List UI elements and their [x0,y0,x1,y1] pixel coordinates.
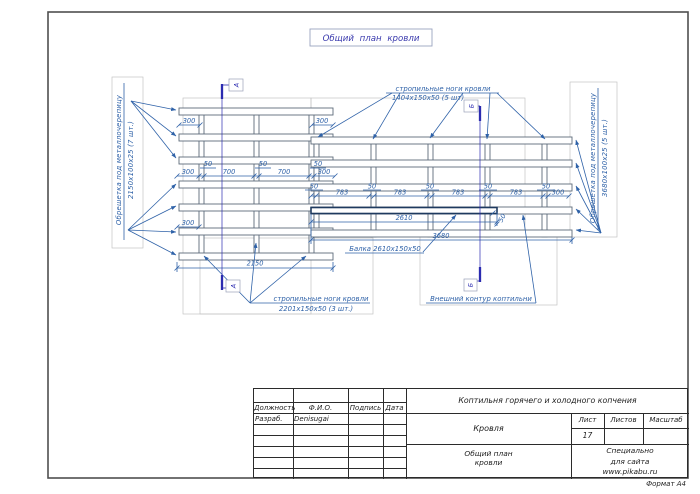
titleblock-col-sheet: Лист [571,414,604,427]
format-label: Формат А4 [596,480,686,488]
dim-300: 300 [316,117,329,125]
drawing-title: Общий план кровли [323,34,420,44]
titleblock-credit-1: Специально [571,446,689,457]
titleblock-sheet-title-1: Общий план [406,449,571,458]
dim-783: 783 [336,189,349,197]
dim-2610: 2610 [396,214,413,222]
dim-300: 300 [552,189,565,197]
batten [311,160,572,167]
contour-label: Внешний контур коптильни [430,295,532,303]
dim-50: 50 [426,183,434,191]
dim-50: 50 [542,183,550,191]
titleblock-project-title: Коптильня горячего и холодного копчения [406,389,689,413]
titleblock-col-date: Дата [383,403,406,413]
section-mark-b: Б [467,282,475,287]
dim-50: 50 [204,160,212,168]
dim-300: 300 [183,117,196,125]
dim-783: 783 [452,189,465,197]
titleblock-col-name: Ф.И.О. [293,403,348,413]
label-underlines [124,83,598,303]
dim-700: 700 [223,168,236,176]
section-mark-a: А [230,284,238,289]
titleblock-col-position: Должность [254,403,293,413]
rafters-top-label-2: 1404х150х50 (5 шт) [392,94,464,102]
titleblock-col-sheets: Листов [604,414,643,427]
dim-2150: 2150 [247,260,264,268]
batten [179,134,333,141]
dim-50: 50 [314,160,322,168]
batten [179,108,333,115]
dim-783: 783 [510,189,523,197]
dim-50: 50 [484,183,492,191]
dim-300: 300 [182,168,195,176]
titleblock-role: Разраб. [255,414,293,424]
titleblock-credit-3: www.pikabu.ru [571,467,689,478]
batten [179,228,333,235]
rafters-bottom-label-1: стропильные ноги кровли [274,295,369,303]
batten [179,204,333,211]
dim-50: 50 [259,160,267,168]
rafters-top-label-1: стропильные ноги кровли [396,85,491,93]
titleblock-sheet-title-2: кровли [406,458,571,467]
section-mark-a: А [233,83,241,88]
titleblock-col-scale: Масштаб [643,414,689,427]
lath-left-label-2: 2150х100х25 (7 шт.) [127,121,135,199]
dim-50: 50 [310,183,318,191]
dim-783: 783 [394,189,407,197]
dim-300: 300 [318,168,331,176]
drawing-sheet: Общий план кровли [0,0,700,494]
title-block: Должность Ф.И.О. Подпись Дата Разраб. De… [253,388,688,478]
titleblock-col-signature: Подпись [348,403,383,413]
titleblock-credit-2: для сайта [571,457,689,468]
dim-700: 700 [278,168,291,176]
titleblock-part-title: Кровля [406,413,571,444]
titleblock-line [406,444,689,445]
lath-right-label-1: Обрешетка под металлочерепицу [589,92,597,223]
batten [311,184,572,191]
dim-300: 300 [182,219,195,227]
lath-right-label-2: 3680х100х25 (5 шт.) [601,119,609,197]
batten [311,137,572,144]
drawing-title-box: Общий план кровли [310,29,432,46]
lath-left-label-1: Обрешетка под металлочерепицу [115,94,123,225]
titleblock-author: Denisugai [294,414,348,424]
titleblock-sheet-number: 17 [571,429,604,443]
batten [179,157,333,164]
section-mark-b: Б [468,103,476,108]
dim-50: 50 [368,183,376,191]
dim-3680: 3680 [433,232,450,240]
beam-label: Балка 2610х150х50 [349,245,421,253]
rafters-bottom-label-2: 2201х150х50 (3 шт.) [279,305,353,313]
section-line-b: Б Б [464,100,480,291]
beam [311,208,497,214]
